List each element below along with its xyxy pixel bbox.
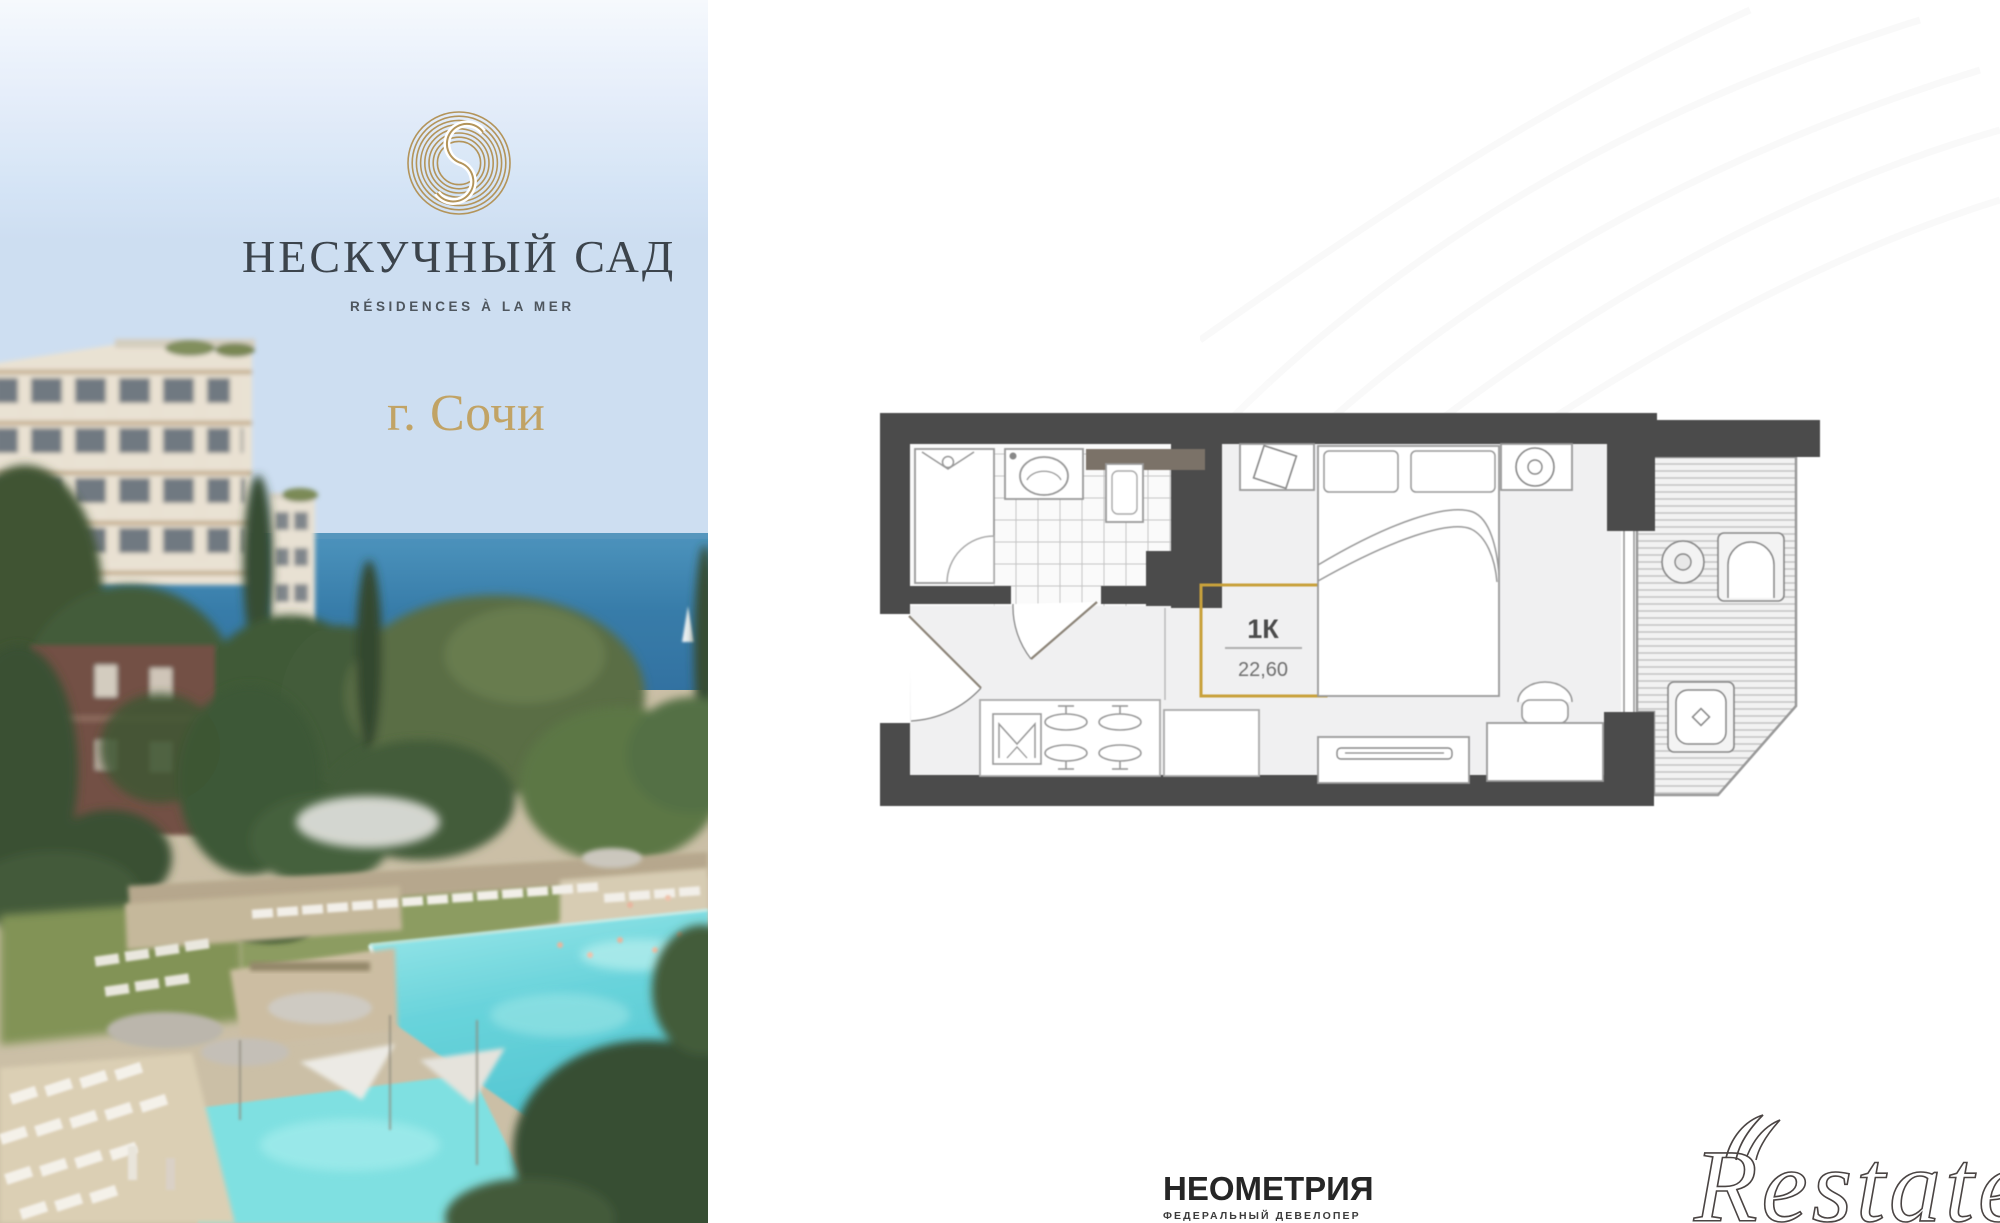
svg-text:22,60: 22,60 — [1238, 659, 1288, 681]
svg-text:1К: 1К — [1247, 614, 1279, 644]
